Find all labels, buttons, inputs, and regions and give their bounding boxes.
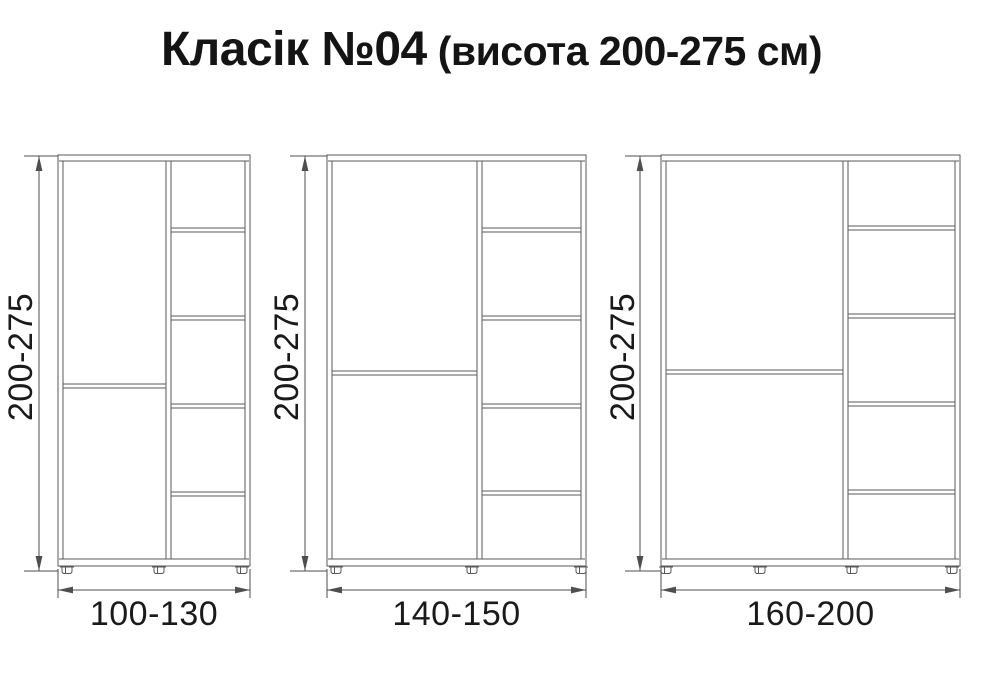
cabinet-frame (661, 155, 960, 566)
height-dimension-label: 200-275 (604, 293, 642, 421)
dimension-arrowhead (661, 587, 676, 594)
dimension-arrowhead (36, 156, 43, 171)
dimension-arrowhead (235, 587, 250, 594)
cabinet-foot (329, 567, 343, 574)
width-dimension-label: 140-150 (392, 595, 520, 633)
dimension-arrowhead (945, 587, 960, 594)
cabinet-foot (465, 567, 479, 574)
cabinet-frame (327, 155, 586, 566)
cabinet-foot (235, 567, 249, 574)
dimension-arrowhead (302, 556, 309, 571)
cabinet-small: 200-275100-130 (2, 155, 250, 633)
width-dimension-label: 160-200 (746, 595, 874, 633)
cabinet-diagrams: 200-275100-130200-275140-150200-275160-2… (0, 0, 983, 700)
height-dimension-label: 200-275 (268, 293, 306, 421)
cabinet-foot (753, 567, 767, 574)
width-dimension-label: 100-130 (90, 595, 218, 633)
dimension-arrowhead (36, 556, 43, 571)
dimension-arrowhead (327, 587, 342, 594)
cabinet-foot (152, 567, 166, 574)
page: Класік №04(висота 200-275 см) 200-275100… (0, 0, 983, 700)
cabinet-frame (58, 155, 250, 566)
dimension-arrowhead (571, 587, 586, 594)
cabinet-medium: 200-275140-150 (268, 155, 588, 633)
dimension-arrowhead (58, 587, 73, 594)
cabinet-foot (845, 567, 859, 574)
cabinet-large: 200-275160-200 (604, 155, 960, 633)
dimension-arrowhead (637, 156, 644, 171)
cabinet-foot (60, 567, 74, 574)
dimension-arrowhead (302, 156, 309, 171)
dimension-arrowhead (637, 556, 644, 571)
cabinet-foot (945, 567, 959, 574)
height-dimension-label: 200-275 (2, 293, 40, 421)
